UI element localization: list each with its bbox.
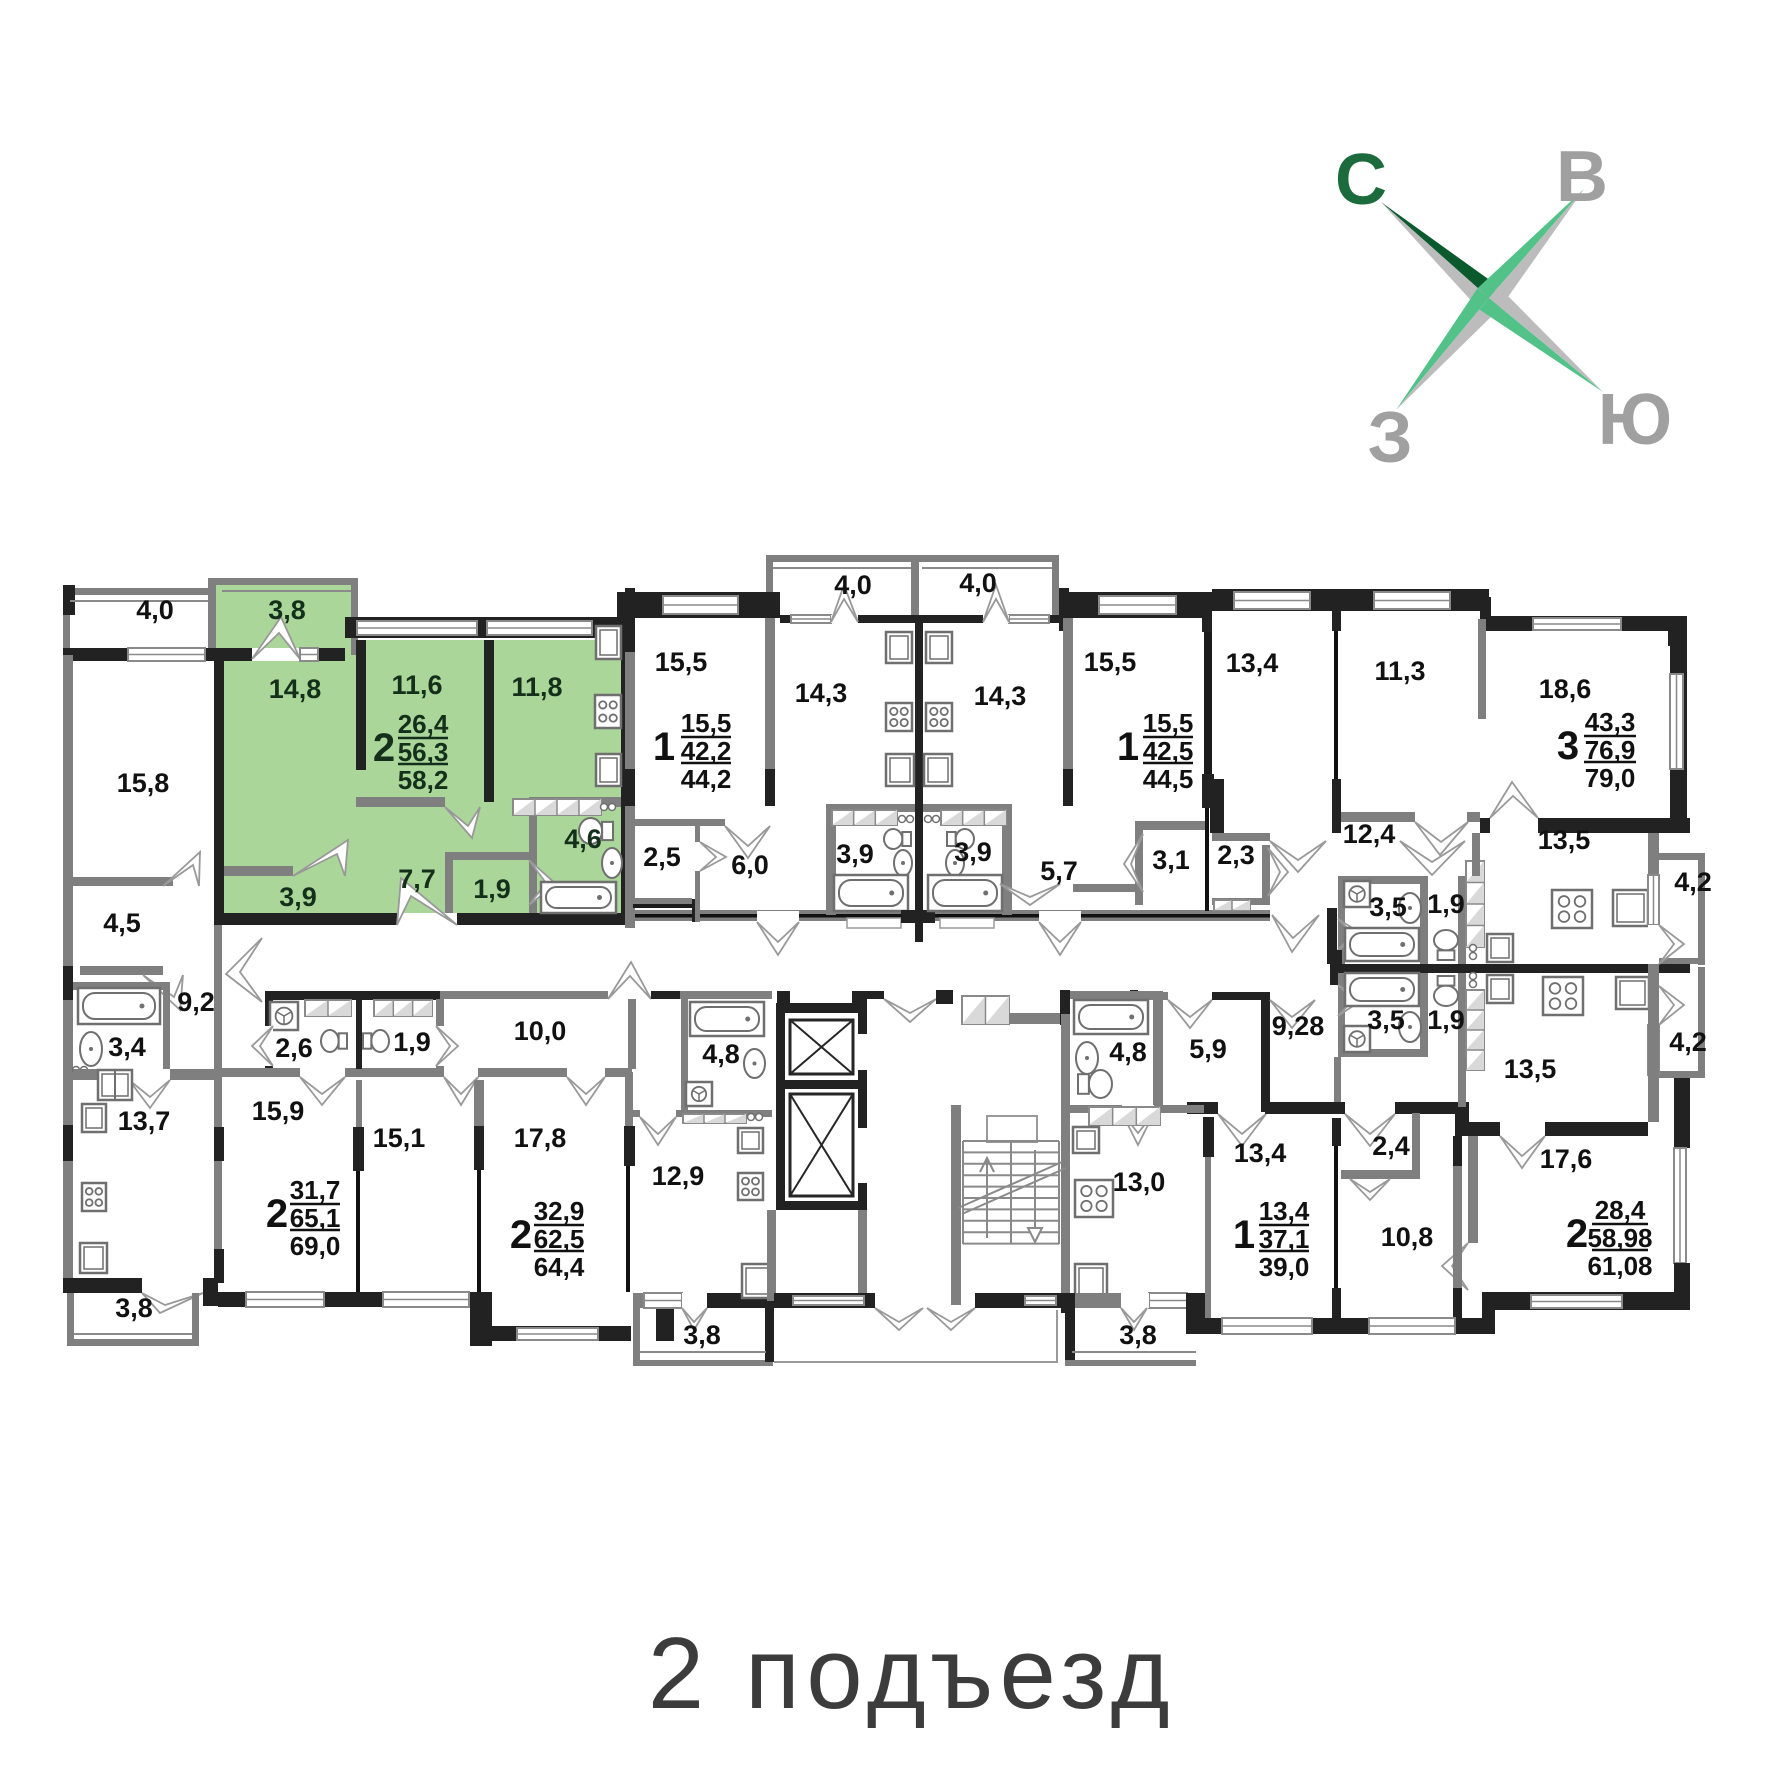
svg-text:13,0: 13,0 <box>1113 1167 1166 1197</box>
svg-text:3,8: 3,8 <box>268 595 306 625</box>
svg-text:79,0: 79,0 <box>1585 763 1636 793</box>
svg-text:3,1: 3,1 <box>1152 845 1190 875</box>
svg-text:2,5: 2,5 <box>643 842 681 872</box>
svg-text:2,4: 2,4 <box>1372 1131 1410 1161</box>
svg-text:1: 1 <box>1233 1213 1255 1257</box>
svg-text:3,8: 3,8 <box>115 1293 153 1323</box>
svg-text:42,5: 42,5 <box>1143 736 1194 766</box>
svg-text:Ю: Ю <box>1598 380 1672 460</box>
svg-text:13,4: 13,4 <box>1226 648 1279 678</box>
svg-text:14,3: 14,3 <box>974 681 1027 711</box>
svg-text:С: С <box>1335 140 1387 220</box>
svg-text:2: 2 <box>510 1213 532 1257</box>
svg-text:14,3: 14,3 <box>795 678 848 708</box>
svg-text:В: В <box>1556 137 1608 217</box>
svg-text:3,9: 3,9 <box>836 839 874 869</box>
svg-text:39,0: 39,0 <box>1259 1252 1310 1282</box>
svg-text:4,8: 4,8 <box>702 1039 740 1069</box>
svg-text:69,0: 69,0 <box>290 1231 341 1261</box>
svg-text:64,4: 64,4 <box>534 1252 585 1282</box>
svg-text:3,4: 3,4 <box>108 1032 146 1062</box>
svg-text:1,9: 1,9 <box>473 874 511 904</box>
svg-text:1,9: 1,9 <box>1427 1005 1465 1035</box>
svg-text:1,9: 1,9 <box>393 1027 431 1057</box>
svg-text:4,2: 4,2 <box>1669 1027 1707 1057</box>
svg-text:15,9: 15,9 <box>252 1096 305 1126</box>
svg-text:58,98: 58,98 <box>1587 1223 1652 1253</box>
svg-text:26,4: 26,4 <box>398 709 449 739</box>
svg-text:13,7: 13,7 <box>118 1106 171 1136</box>
svg-text:14,8: 14,8 <box>269 674 322 704</box>
svg-text:1,9: 1,9 <box>1427 889 1465 919</box>
svg-text:5,7: 5,7 <box>1040 856 1078 886</box>
svg-text:5,9: 5,9 <box>1189 1034 1227 1064</box>
svg-text:7,7: 7,7 <box>398 864 436 894</box>
svg-text:4,5: 4,5 <box>103 908 141 938</box>
svg-text:43,3: 43,3 <box>1585 707 1636 737</box>
svg-text:15,8: 15,8 <box>117 768 170 798</box>
svg-text:11,6: 11,6 <box>391 670 442 700</box>
svg-text:10,8: 10,8 <box>1381 1222 1434 1252</box>
svg-text:15,5: 15,5 <box>681 708 732 738</box>
svg-text:44,5: 44,5 <box>1143 764 1194 794</box>
svg-text:1: 1 <box>653 725 675 769</box>
svg-text:65,1: 65,1 <box>290 1203 341 1233</box>
svg-text:37,1: 37,1 <box>1259 1224 1310 1254</box>
svg-text:28,4: 28,4 <box>1595 1195 1646 1225</box>
svg-text:13,4: 13,4 <box>1259 1196 1310 1226</box>
svg-text:44,2: 44,2 <box>681 764 732 794</box>
svg-text:10,0: 10,0 <box>514 1016 567 1046</box>
svg-text:15,5: 15,5 <box>655 647 708 677</box>
svg-text:3,5: 3,5 <box>1367 1005 1405 1035</box>
svg-text:4,6: 4,6 <box>564 824 602 854</box>
svg-text:58,2: 58,2 <box>398 765 449 795</box>
svg-text:18,6: 18,6 <box>1539 674 1592 704</box>
svg-text:3,9: 3,9 <box>954 837 992 867</box>
svg-text:61,08: 61,08 <box>1587 1251 1652 1281</box>
svg-text:3,5: 3,5 <box>1369 892 1407 922</box>
svg-text:12,9: 12,9 <box>652 1161 705 1191</box>
svg-text:62,5: 62,5 <box>534 1224 585 1254</box>
svg-text:13,5: 13,5 <box>1538 825 1591 855</box>
svg-text:3,9: 3,9 <box>279 882 317 912</box>
svg-text:3,8: 3,8 <box>1119 1320 1157 1350</box>
svg-text:17,8: 17,8 <box>514 1123 567 1153</box>
svg-text:31,7: 31,7 <box>290 1175 341 1205</box>
svg-text:2,3: 2,3 <box>1217 840 1255 870</box>
svg-text:13,4: 13,4 <box>1234 1138 1287 1168</box>
svg-text:9,2: 9,2 <box>177 987 215 1017</box>
svg-text:76,9: 76,9 <box>1585 735 1636 765</box>
svg-text:3,8: 3,8 <box>683 1320 721 1350</box>
svg-text:2 подъезд: 2 подъезд <box>648 1618 1176 1730</box>
svg-text:4,0: 4,0 <box>136 595 174 625</box>
svg-text:2: 2 <box>266 1192 288 1236</box>
svg-text:9,28: 9,28 <box>1272 1011 1325 1041</box>
svg-text:6,0: 6,0 <box>731 850 769 880</box>
svg-text:4,0: 4,0 <box>959 568 997 598</box>
svg-text:11,3: 11,3 <box>1374 656 1425 686</box>
svg-text:56,3: 56,3 <box>398 737 449 767</box>
svg-text:2: 2 <box>373 726 395 770</box>
svg-text:15,1: 15,1 <box>373 1123 426 1153</box>
svg-text:17,6: 17,6 <box>1540 1144 1593 1174</box>
svg-text:3: 3 <box>1557 724 1579 768</box>
svg-text:15,5: 15,5 <box>1084 647 1137 677</box>
svg-text:4,2: 4,2 <box>1674 867 1712 897</box>
svg-text:15,5: 15,5 <box>1143 708 1194 738</box>
svg-text:2,6: 2,6 <box>275 1033 313 1063</box>
svg-text:11,8: 11,8 <box>511 672 562 702</box>
svg-text:4,8: 4,8 <box>1109 1037 1147 1067</box>
svg-text:12,4: 12,4 <box>1343 819 1396 849</box>
svg-text:2: 2 <box>1566 1212 1588 1256</box>
svg-text:1: 1 <box>1117 725 1139 769</box>
svg-text:З: З <box>1367 398 1412 478</box>
svg-text:13,5: 13,5 <box>1504 1054 1557 1084</box>
svg-text:42,2: 42,2 <box>681 736 732 766</box>
svg-text:4,0: 4,0 <box>834 570 872 600</box>
svg-text:32,9: 32,9 <box>534 1196 585 1226</box>
